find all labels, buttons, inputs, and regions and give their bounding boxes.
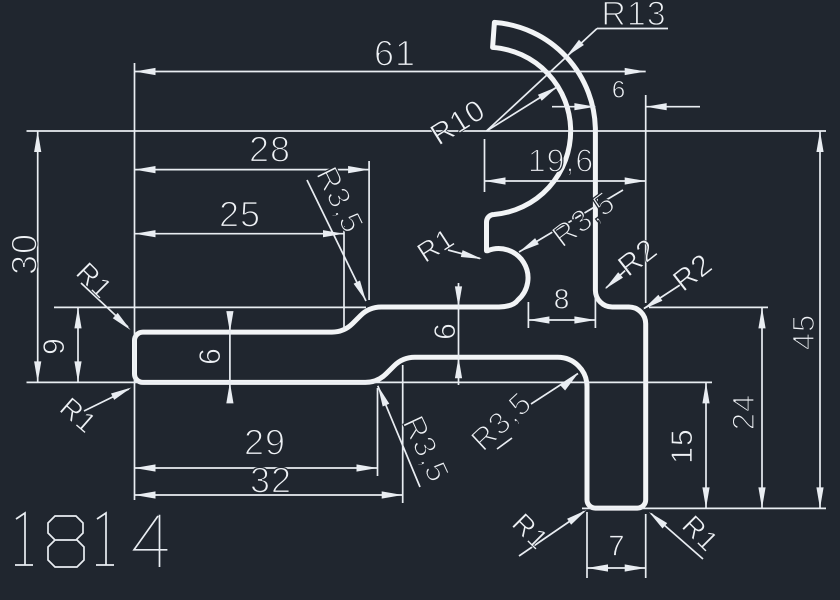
svg-text:15: 15: [666, 428, 699, 463]
svg-text:29: 29: [244, 422, 286, 463]
svg-text:6: 6: [612, 76, 626, 103]
svg-text:30: 30: [4, 233, 45, 275]
svg-text:24: 24: [726, 394, 761, 430]
svg-text:8: 8: [554, 283, 571, 314]
svg-text:9: 9: [38, 337, 71, 355]
svg-text:45: 45: [786, 314, 821, 350]
svg-text:61: 61: [374, 33, 416, 74]
svg-text:7: 7: [608, 531, 625, 563]
svg-text:19,6: 19,6: [528, 142, 594, 178]
svg-text:25: 25: [219, 194, 261, 235]
svg-text:6: 6: [429, 322, 462, 340]
svg-text:6: 6: [194, 347, 227, 365]
svg-text:R13: R13: [601, 0, 666, 33]
svg-text:28: 28: [249, 129, 291, 170]
svg-text:32: 32: [250, 460, 292, 501]
